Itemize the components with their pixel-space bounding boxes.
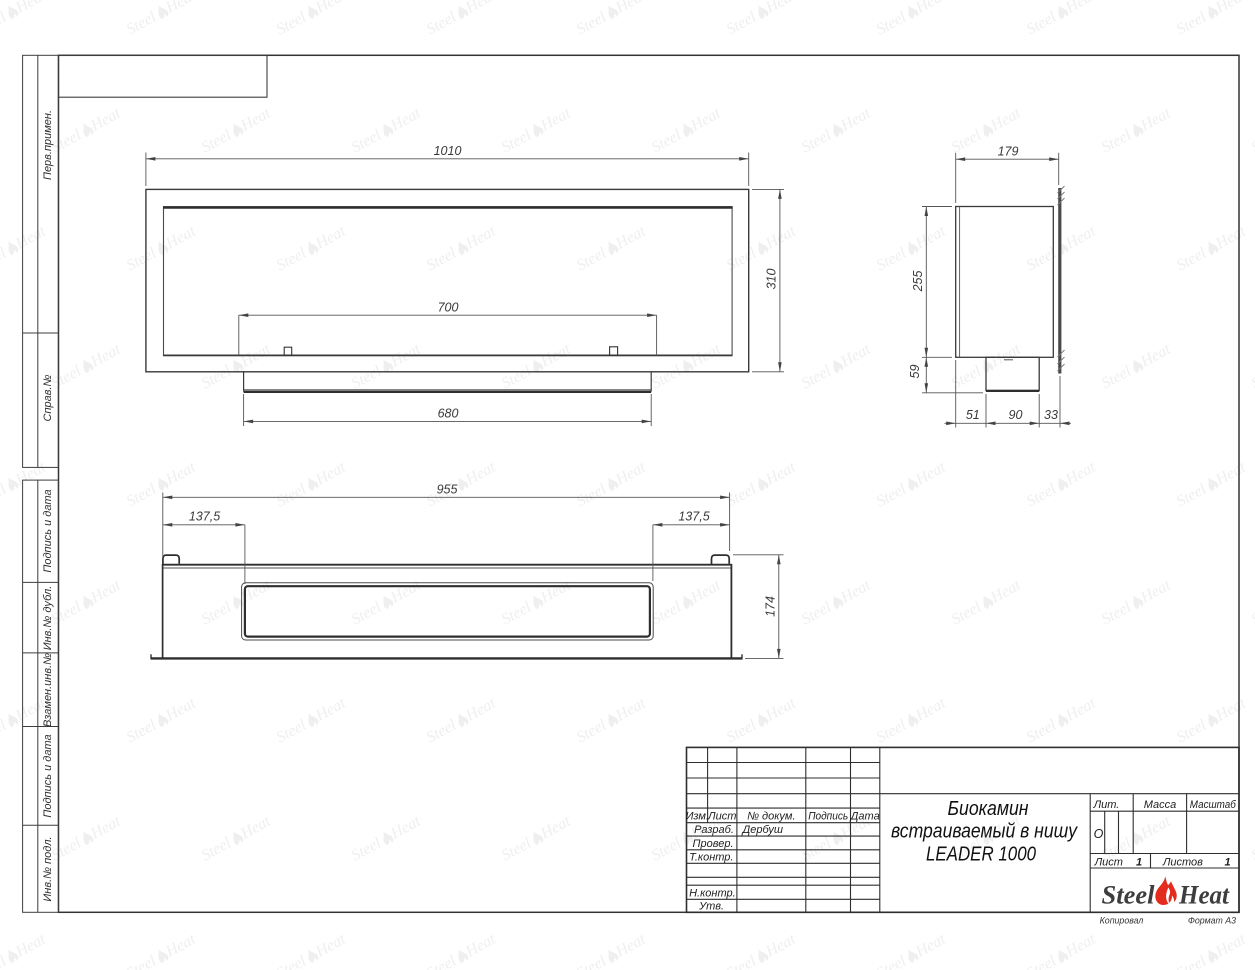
svg-text:Копировал: Копировал — [1100, 915, 1144, 925]
svg-text:680: 680 — [438, 407, 459, 421]
svg-text:1: 1 — [1136, 856, 1142, 868]
svg-text:Т.контр.: Т.контр. — [689, 851, 733, 863]
svg-text:Н.контр.: Н.контр. — [689, 887, 736, 899]
svg-text:Подпись: Подпись — [808, 811, 848, 823]
svg-text:179: 179 — [998, 144, 1019, 158]
svg-text:Справ.№: Справ.№ — [42, 374, 54, 421]
svg-text:встраиваемый в нишу: встраиваемый в нишу — [891, 821, 1078, 843]
svg-text:1010: 1010 — [434, 144, 462, 158]
svg-text:Формат А3: Формат А3 — [1188, 915, 1236, 925]
svg-text:Инв.№ подл.: Инв.№ подл. — [42, 836, 54, 901]
svg-text:Утв.: Утв. — [698, 900, 724, 912]
svg-text:255: 255 — [911, 271, 925, 293]
svg-text:Изм.: Изм. — [686, 811, 709, 823]
svg-text:Дата: Дата — [849, 811, 880, 823]
svg-text:Лист: Лист — [707, 811, 736, 823]
svg-text:955: 955 — [437, 483, 458, 497]
svg-text:Масса: Масса — [1144, 799, 1177, 811]
svg-text:Heat: Heat — [1178, 881, 1230, 910]
svg-text:137,5: 137,5 — [678, 510, 709, 524]
svg-text:Подпись и дата: Подпись и дата — [42, 489, 54, 572]
svg-text:33: 33 — [1044, 408, 1058, 422]
svg-text:Взамен.инв.№: Взамен.инв.№ — [42, 653, 54, 727]
svg-text:174: 174 — [763, 596, 777, 617]
svg-text:59: 59 — [908, 365, 922, 379]
svg-text:Инв.№ дубл.: Инв.№ дубл. — [42, 586, 54, 651]
svg-text:№ докум.: № докум. — [747, 811, 795, 823]
svg-text:310: 310 — [765, 269, 779, 290]
svg-text:51: 51 — [966, 408, 980, 422]
svg-text:1: 1 — [1225, 856, 1231, 868]
svg-text:Разраб.: Разраб. — [694, 824, 734, 836]
svg-text:700: 700 — [438, 301, 459, 315]
svg-text:Лист: Лист — [1094, 856, 1123, 868]
svg-text:137,5: 137,5 — [189, 510, 220, 524]
svg-text:Перв.примен.: Перв.примен. — [42, 110, 54, 180]
svg-text:90: 90 — [1009, 408, 1023, 422]
svg-text:Steel: Steel — [1102, 881, 1156, 910]
svg-text:Листов: Листов — [1162, 856, 1203, 868]
svg-text:Провер.: Провер. — [693, 838, 734, 850]
svg-text:Лит.: Лит. — [1093, 799, 1120, 811]
svg-text:Масштаб: Масштаб — [1190, 799, 1237, 811]
svg-text:Биокамин: Биокамин — [948, 798, 1029, 820]
svg-text:LEADER 1000: LEADER 1000 — [926, 844, 1036, 866]
svg-text:Дербуш: Дербуш — [741, 824, 784, 836]
svg-text:О: О — [1094, 827, 1104, 841]
svg-text:Подпись и дата: Подпись и дата — [42, 734, 54, 817]
